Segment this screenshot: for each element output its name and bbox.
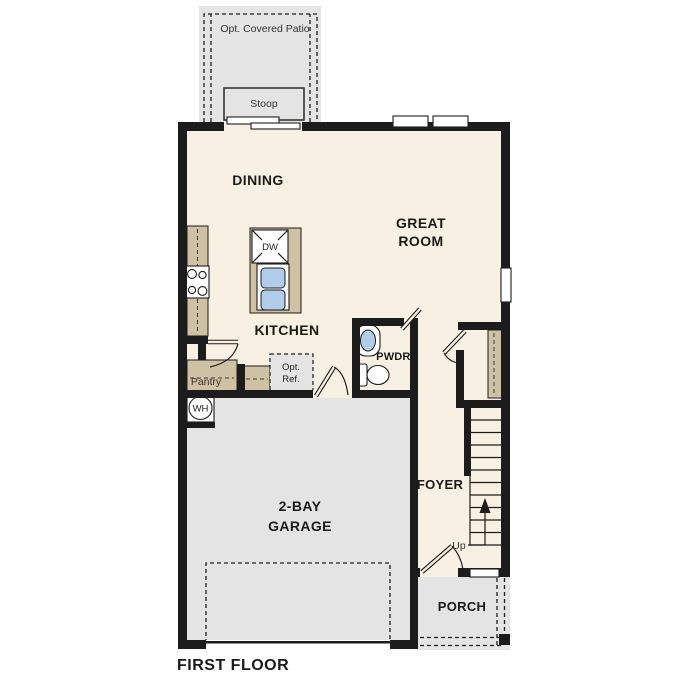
- wall-pantry-right: [237, 364, 245, 392]
- wall-left: [178, 122, 187, 649]
- window-great-room-1: [393, 116, 428, 127]
- sink-bowl-bottom: [261, 290, 285, 310]
- dining-label: DINING: [232, 172, 283, 188]
- sliding-door-panel: [251, 123, 300, 129]
- great-room-label-line2: ROOM: [398, 233, 443, 249]
- porch-column: [499, 634, 510, 645]
- wall-pantry-jamb: [198, 336, 206, 360]
- window-great-room-2: [433, 116, 468, 127]
- optional-refrigerator-box: [270, 354, 313, 392]
- pantry-label: Pantry: [191, 376, 222, 388]
- porch-label: PORCH: [438, 599, 486, 614]
- burner-icon: [188, 286, 195, 293]
- floorplan-drawing: Opt. Covered Patio Stoop DINING GREAT RO…: [0, 0, 687, 687]
- wall-stair-side: [464, 408, 471, 476]
- dishwasher-label: DW: [262, 242, 278, 253]
- patio-label: Opt. Covered Patio: [220, 23, 309, 35]
- wall-right: [501, 122, 510, 577]
- first-floor-plan: Opt. Covered Patio Stoop DINING GREAT RO…: [0, 0, 687, 687]
- burner-icon: [198, 287, 207, 296]
- window-right-wall: [501, 268, 511, 302]
- plan-title: FIRST FLOOR: [177, 657, 289, 674]
- kitchen-label: KITCHEN: [254, 322, 319, 338]
- powder-sink-bowl: [361, 330, 376, 351]
- powder-label: PWDR.: [376, 351, 414, 363]
- garage-label-line1: 2-BAY: [279, 498, 322, 514]
- burner-icon: [188, 270, 197, 279]
- water-heater-label: WH: [193, 404, 209, 415]
- wall-powder-left: [352, 318, 360, 394]
- garage-label-line2: GARAGE: [268, 518, 332, 534]
- stoop-label: Stoop: [250, 98, 278, 110]
- stairs-up-label: Up: [452, 540, 466, 552]
- foyer-label: FOYER: [417, 477, 464, 492]
- wall-wh-nook: [187, 422, 215, 428]
- wall-closet-top: [458, 322, 510, 330]
- wall-powder-top: [352, 318, 404, 326]
- garage-opening-threshold: [206, 641, 390, 644]
- window-porch: [470, 569, 499, 577]
- sink-bowl-top: [261, 268, 285, 288]
- toilet-bowl: [367, 366, 389, 385]
- wall-garage-top: [187, 390, 418, 398]
- opt-ref-label-line1: Opt.: [282, 362, 300, 373]
- opt-ref-label-line2: Ref.: [282, 374, 299, 385]
- wall-closet-left: [456, 350, 464, 408]
- burner-icon: [199, 271, 206, 278]
- wall-closet-bottom: [456, 400, 510, 408]
- great-room-label-line1: GREAT: [396, 215, 446, 231]
- closet-shelf: [488, 330, 502, 398]
